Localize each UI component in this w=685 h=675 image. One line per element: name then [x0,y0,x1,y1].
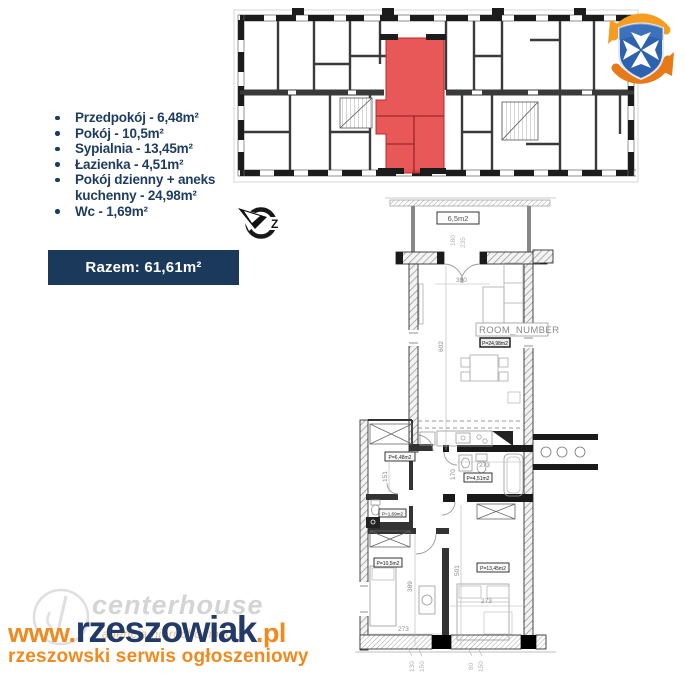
watermark-url-prefix: www. [8,618,76,649]
dim-80: 80 [468,662,475,670]
room-summary-list: Przedpokój - 6,48m² Pokój - 10,5m² Sypia… [46,110,243,219]
balcony [385,198,556,253]
building-site-plan [230,4,642,188]
dim-151: 151 [382,471,389,482]
watermark-url: www. rzeszowiak .pl [8,609,286,651]
room-area-label: P=10,5m2 [377,561,400,567]
north-letter: Z [271,217,278,231]
list-item: Sypialnia - 13,45m² [46,141,243,157]
total-area-banner: Razem: 61,61m² [48,250,239,285]
room-number-label: ROOM_NUMBER [479,325,559,336]
dim-235: 235 [460,237,467,248]
dim-150a: 150 [419,661,426,672]
dim-501: 501 [454,565,461,576]
dim-273-bath: 273 [479,462,490,469]
hall-area-label: P=6,48m2 [389,455,412,461]
list-item: Pokój dzienny + aneks kuchenny - 24,98m² [46,172,243,203]
brand-shield-logo [604,6,678,90]
dim-130: 130 [409,661,416,672]
watermark-url-suffix: .pl [256,618,286,649]
dim-180: 180 [450,235,457,246]
highlighted-unit [376,34,446,174]
wc-area-label: P=1,69m2 [382,512,404,517]
bedroom-area-label: P=13,45m2 [480,566,506,572]
dim-170: 170 [450,469,457,480]
dim-273-bedroom: 273 [481,598,492,605]
list-item: Łazienka - 4,51m² [46,157,243,173]
apartment-floor-plan: 390 602 180 235 151 170 273 501 389 273 … [350,193,605,675]
dim-150b: 150 [478,661,485,672]
balcony-area-label: 6,5m2 [448,214,469,223]
dim-602: 602 [438,341,445,352]
list-item: Przedpokój - 6,48m² [46,110,243,126]
dim-273-room: 273 [398,626,409,633]
watermark-url-main: rzeszowiak [76,609,256,651]
watermark-tagline: rzeszowski serwis ogłoszeniowy [8,646,309,668]
dim-390: 390 [456,277,467,284]
living-area-label: P=24,98m2 [482,341,508,347]
walls [355,250,598,652]
shield-cross-icon [619,24,663,80]
bathroom-area-label: P=4,51m2 [467,476,490,482]
list-item: Wc - 1,69m² [46,204,243,220]
dim-389: 389 [407,581,414,592]
list-item: Pokój - 10,5m² [46,126,243,142]
flyer-page: Z Przedpokój - 6,48m² Pokój - 10,5m² Syp… [0,0,685,675]
